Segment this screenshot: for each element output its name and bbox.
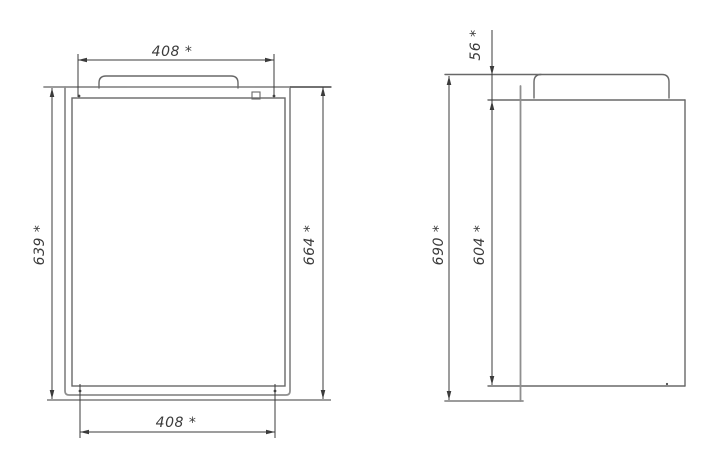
side-dim-lid-and-body: 56 * 604 * xyxy=(468,29,494,385)
dim-label-side-overall-height: 690 * xyxy=(431,225,447,266)
drawing-canvas: 408 * 408 * 639 * xyxy=(0,0,720,470)
dim-label-side-body-height: 604 * xyxy=(472,225,488,266)
dim-label-front-top-width: 408 * xyxy=(152,44,193,60)
side-top-line-and-lid xyxy=(445,75,669,99)
arrowhead-left xyxy=(78,58,87,63)
front-body-outline xyxy=(72,76,285,386)
side-dimensions: 690 * 56 * 604 * xyxy=(431,29,494,400)
arrowhead-right xyxy=(265,58,274,63)
side-view: 690 * 56 * 604 * xyxy=(431,29,685,401)
front-dim-left-height: 639 * xyxy=(32,88,54,399)
dim-label-front-right-height: 664 * xyxy=(302,225,318,266)
dim-label-front-left-height: 639 * xyxy=(32,225,48,266)
side-dim-overall-height: 690 * xyxy=(431,76,451,400)
front-main-body xyxy=(72,98,285,386)
arrowhead-up xyxy=(447,76,452,85)
front-view: 408 * 408 * 639 * xyxy=(32,44,331,438)
side-drain-mark xyxy=(666,383,668,385)
arrowhead-down-lid-top xyxy=(490,66,495,75)
arrowhead-down xyxy=(321,390,326,399)
front-mount-holes xyxy=(78,95,277,393)
arrowhead-up xyxy=(321,87,326,96)
front-dim-right-height: 664 * xyxy=(290,87,331,399)
arrowhead-up xyxy=(50,88,55,97)
arrowhead-left xyxy=(80,430,89,435)
technical-drawing: 408 * 408 * 639 * xyxy=(0,0,720,470)
side-lid-left-edge xyxy=(534,75,541,99)
dim-label-front-bottom-width: 408 * xyxy=(156,415,197,431)
arrowhead-down-body-bottom xyxy=(490,376,495,385)
front-dimensions: 408 * 408 * 639 * xyxy=(32,44,331,438)
arrowhead-down xyxy=(447,391,452,400)
front-plate-outline xyxy=(44,87,331,395)
front-dim-bottom-width: 408 * xyxy=(80,384,275,438)
arrowhead-up-seam xyxy=(490,101,495,110)
front-dim-top-width: 408 * xyxy=(78,44,274,97)
arrowhead-down xyxy=(50,390,55,399)
front-plate-body xyxy=(65,87,290,395)
dim-label-side-lid-height: 56 * xyxy=(468,29,484,60)
arrowhead-right xyxy=(266,430,275,435)
